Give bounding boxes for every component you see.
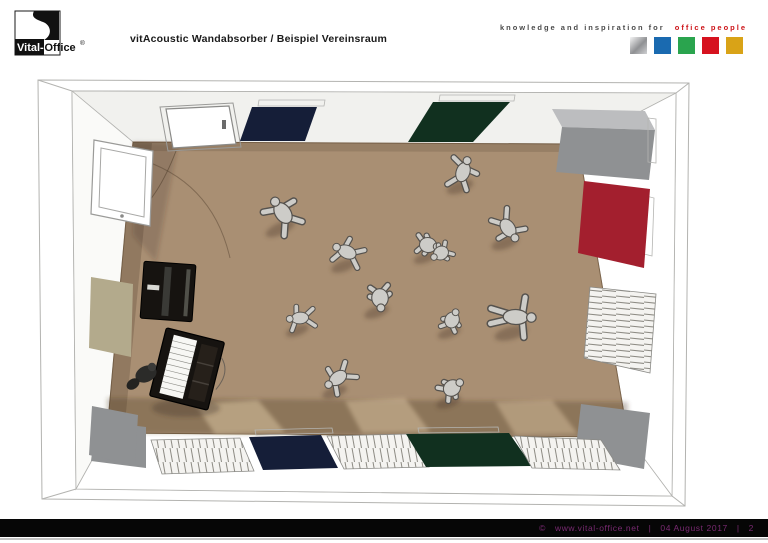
footer-separator: | <box>649 523 652 533</box>
brand-square-silver <box>630 37 647 54</box>
absorber-panel-gray-left-bottom <box>89 406 138 465</box>
window-latch <box>120 214 124 218</box>
door <box>160 103 241 151</box>
absorber-panel-gray-hanging-top <box>552 109 655 130</box>
absorber-panel-navy-top <box>240 107 317 141</box>
absorber-panel-gray-hanging-front <box>556 127 655 180</box>
brand-square-red <box>702 37 719 54</box>
footer-rule <box>0 538 768 540</box>
upright-piano <box>140 261 196 321</box>
page-title: vitAcoustic Wandabsorber / Beispiel Vere… <box>130 33 387 45</box>
slat-absorber-right <box>584 287 656 373</box>
vital-office-logo: Vital- Office ® <box>14 10 134 67</box>
window <box>91 140 153 226</box>
absorber-panel-red <box>578 181 650 268</box>
footer-date: 04 August 2017 <box>660 523 727 533</box>
footer-page-number: 2 <box>749 523 754 533</box>
footer-url: www.vital-office.net <box>555 523 640 533</box>
footer-bar: © www.vital-office.net | 04 August 2017 … <box>0 519 768 537</box>
brand-square-green <box>678 37 695 54</box>
brand-color-squares <box>630 37 743 54</box>
door-handle <box>222 120 226 129</box>
tagline: knowledge and inspiration for office peo… <box>500 23 747 32</box>
vital-office-logo-svg: Vital- Office ® <box>14 10 134 62</box>
tagline-prefix: knowledge and inspiration for <box>500 23 665 32</box>
brand-square-gold <box>726 37 743 54</box>
brand-square-blue <box>654 37 671 54</box>
logo-text-vital: Vital- <box>17 42 44 54</box>
tagline-highlight: office people <box>675 23 747 32</box>
slat-absorber-bottom-1 <box>151 438 254 474</box>
logo-registered-mark: ® <box>80 39 85 47</box>
room-render <box>0 0 768 543</box>
piano-music-rest <box>147 285 159 291</box>
logo-text-office: Office <box>45 42 76 54</box>
absorber-panel-beige-left <box>89 277 133 357</box>
footer-copyright: © <box>539 523 546 533</box>
footer-separator: | <box>737 523 740 533</box>
